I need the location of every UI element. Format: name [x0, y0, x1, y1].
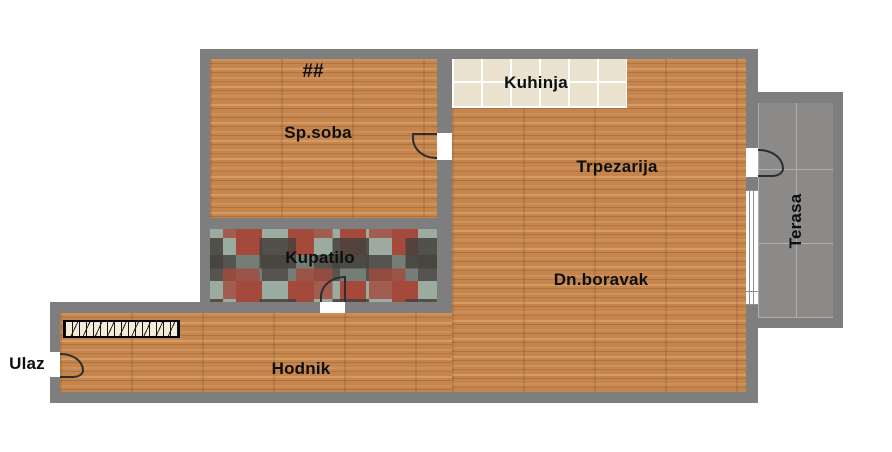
wall-bedroom-bathroom	[200, 218, 452, 229]
window-living-terrace	[746, 190, 758, 305]
window-glazing-tick	[746, 291, 758, 292]
door-opening-sp-soba	[437, 133, 452, 160]
wall-terrace-top	[746, 92, 843, 103]
wall-left-lower	[50, 302, 60, 392]
room-label-dn-boravak: Dn.boravak	[554, 270, 649, 290]
wall-bottom	[50, 392, 758, 403]
entrance-label: Ulaz	[9, 354, 45, 374]
door-opening-ulaz	[49, 352, 60, 377]
wall-left-upper	[200, 59, 210, 302]
floor-plan: ## Sp.soba Kuhinja Trpezarija Kupatilo D…	[0, 0, 892, 452]
room-floor-living-dining	[452, 59, 746, 392]
room-label-terasa: Terasa	[786, 194, 806, 249]
door-opening-terasa	[746, 148, 758, 177]
wall-central-vertical	[437, 59, 452, 302]
wardrobe-symbol	[63, 320, 180, 338]
wall-top	[200, 49, 758, 59]
room-label-kupatilo: Kupatilo	[285, 248, 355, 268]
room-label-sp-soba: Sp.soba	[284, 123, 352, 143]
door-opening-kupatilo	[320, 302, 345, 313]
wall-hallway-bathroom	[50, 302, 452, 313]
wall-terrace-bottom	[746, 318, 843, 328]
room-label-trpezarija: Trpezarija	[576, 157, 657, 177]
room-label-hodnik: Hodnik	[272, 359, 331, 379]
radiator-symbol: ##	[302, 61, 323, 83]
wall-terrace-right	[833, 92, 843, 328]
room-label-kuhinja: Kuhinja	[504, 73, 568, 93]
